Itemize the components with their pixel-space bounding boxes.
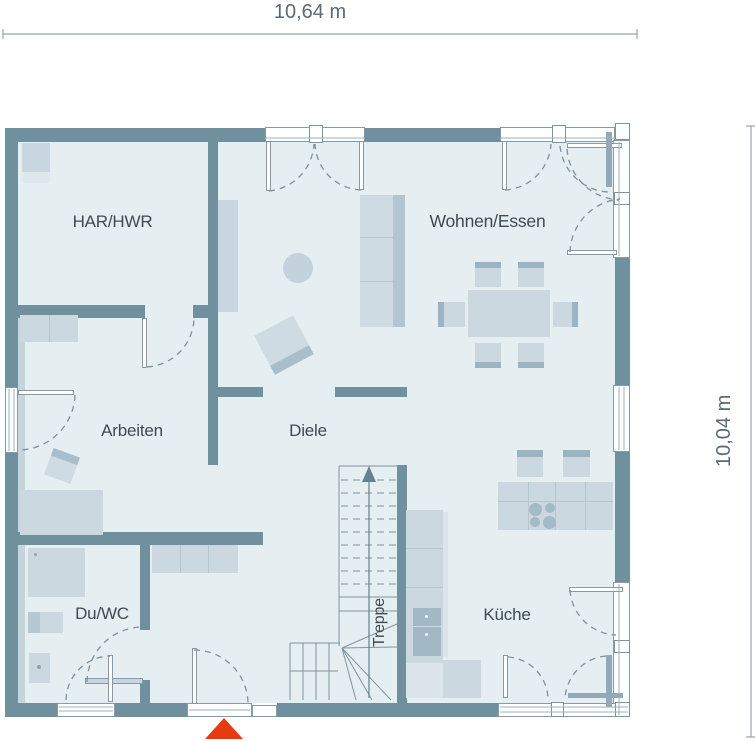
room-label-arbeiten: Arbeiten [92, 421, 172, 441]
wall-duwc-right-upper [140, 545, 150, 630]
room-label-wohnen-essen: Wohnen/Essen [415, 211, 560, 232]
corner-post-top-right [615, 123, 630, 140]
room-label-treppe: Treppe [371, 595, 389, 651]
dining-chair-bottom-1 [475, 343, 501, 368]
window-leaf-arbeiten [18, 390, 74, 395]
wall-right-upper [615, 258, 630, 385]
post-right-upper [614, 192, 630, 205]
room-label-kueche: Küche [478, 605, 536, 625]
washing-machine [22, 143, 50, 172]
kitchen-base-cabinet [406, 663, 443, 698]
dining-table [468, 290, 550, 337]
dining-chair-top-1 [475, 262, 501, 287]
wall-bottom-left [5, 703, 57, 717]
window-left-arbeiten [5, 387, 18, 453]
wall-left-upper [5, 128, 18, 387]
sliding-panel-corner-top [606, 132, 612, 187]
window-leaf-duwc [108, 655, 113, 702]
door-post-top-1 [309, 125, 323, 143]
oven-lower [413, 627, 441, 656]
toilet [29, 653, 50, 683]
desk [20, 490, 103, 535]
door-post-top-2 [552, 125, 566, 143]
wall-top-middle [365, 128, 500, 142]
sliding-panel-corner-bottom-h [568, 693, 623, 698]
plant [283, 253, 313, 283]
door-leaf-har [142, 318, 147, 368]
room-label-har-hwr: HAR/HWR [60, 212, 165, 232]
entrance-door-opening [187, 703, 252, 717]
wall-left-lower [5, 453, 18, 717]
door-leaf-top2-left [502, 141, 507, 190]
door-leaf-corner-bottom-v [503, 655, 508, 698]
sink [28, 612, 63, 633]
door-leaf-duwc [85, 678, 143, 684]
cooktop-burner-4 [543, 516, 556, 529]
door-leaf-entrance [192, 648, 197, 704]
dimension-height-label: 10,04 m [713, 385, 736, 477]
cooktop-burner-1 [529, 503, 542, 516]
wardrobe [152, 545, 238, 573]
window-duwc [57, 703, 115, 717]
bar-stool-2 [563, 450, 590, 477]
door-leaf-top1-right [359, 141, 364, 190]
corner-post-bottom-right [615, 702, 630, 717]
sofa-backrest [393, 195, 405, 327]
post-bottom-glazing [551, 702, 564, 717]
window-right-kueche-upper [613, 385, 630, 452]
wall-bottom-center [277, 703, 498, 717]
wall-bottom-center-left [115, 703, 187, 717]
post-right-lower [614, 640, 630, 653]
room-label-du-wc: Du/WC [70, 604, 134, 624]
hall-cabinet-tall [218, 200, 238, 312]
shower [28, 548, 85, 597]
wall-diele-stub-right [335, 387, 407, 397]
room-label-diele: Diele [284, 421, 332, 441]
oven [413, 608, 441, 626]
wall-right-middle [615, 452, 630, 582]
floor-plan: HAR/HWR Wohnen/Essen Arbeiten Diele Du/W… [0, 0, 755, 741]
kitchen-units-side [443, 512, 448, 657]
cooktop-burner-3 [530, 517, 540, 527]
door-leaf-kueche [569, 587, 623, 592]
wall-top-left [5, 128, 265, 142]
dining-chair-left [438, 302, 465, 327]
door-leaf-corner-top-h2 [567, 250, 617, 255]
sliding-panel-corner-bottom-v [606, 655, 612, 707]
door-leaf-top1-left [266, 141, 271, 191]
sideboard-arbeiten [20, 315, 78, 342]
dining-chair-top-2 [518, 262, 544, 287]
dining-chair-right [553, 302, 578, 327]
kitchen-cabinet-extension [443, 660, 481, 698]
entrance-sidelight [252, 705, 277, 717]
wall-har-bottom-b [193, 305, 218, 318]
washing-machine-front [22, 172, 50, 183]
door-leaf-corner-top-h1 [567, 143, 622, 148]
dimension-width-label: 10,64 m [235, 1, 385, 24]
dining-chair-bottom-2 [518, 343, 544, 368]
entrance-marker-icon [205, 718, 243, 739]
cooktop-burner-2 [545, 503, 555, 513]
wall-har-right [208, 142, 218, 465]
wall-diele-stub-left [208, 387, 263, 397]
sofa-seats [360, 195, 393, 327]
bar-stool-1 [517, 450, 543, 477]
